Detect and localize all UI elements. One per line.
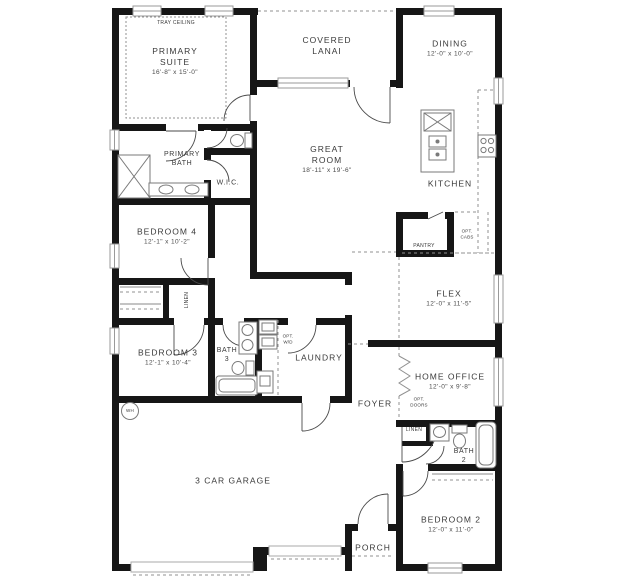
fixtures (118, 110, 496, 468)
shower (118, 155, 150, 198)
floor-plan-drawing (0, 0, 617, 582)
bath3-tub (216, 376, 258, 395)
bath3-vanity (239, 322, 257, 354)
bath2-sink (430, 424, 449, 441)
bath2-toilet (452, 425, 467, 448)
closet-shelf-lines (120, 287, 493, 474)
opt-doors-symbol (399, 356, 410, 396)
kitchen-island (421, 110, 454, 172)
dashed-lines (120, 11, 494, 575)
walls (112, 8, 502, 571)
floor-plan: TRAY CEILING PRIMARY SUITE 16'-8" x 15'-… (0, 0, 617, 582)
toilet (231, 133, 253, 148)
water-heater-circle (122, 403, 139, 420)
double-vanity (149, 183, 208, 196)
bath3-toilet (232, 361, 254, 375)
range-cooktop (478, 135, 496, 157)
bath2-tub (476, 422, 496, 468)
